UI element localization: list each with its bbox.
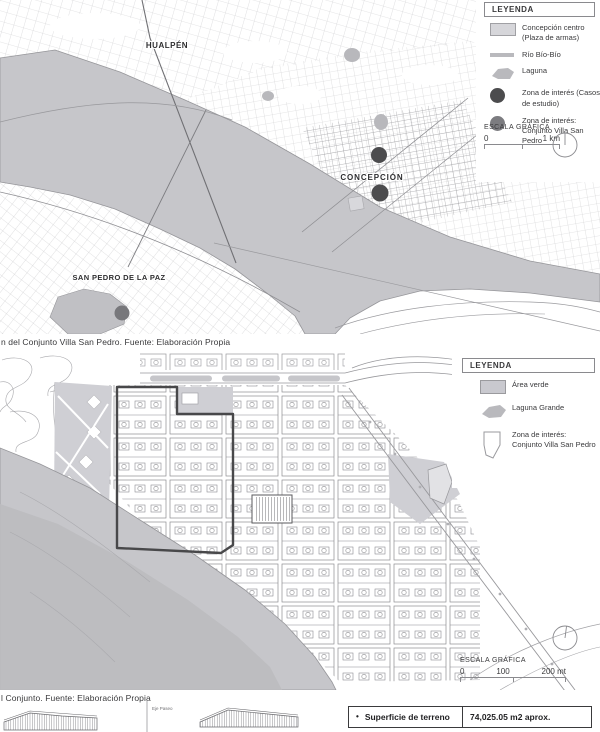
figure-page: HUALPÉN CONCEPCIÓN SAN PEDRO DE LA PAZ L… [0,0,600,732]
label-san-pedro: SAN PEDRO DE LA PAZ [72,273,165,282]
open-land-patch [278,86,322,104]
legend-item-laguna: Laguna [479,66,600,81]
surface-table: • Superficie de terreno 74,025.05 m2 apr… [348,706,592,728]
overview-scale: ESCALA GRÁFICA 0 1 km [484,124,560,150]
overview-scale-title: ESCALA GRÁFICA [484,124,560,131]
study-zone-dot-1 [371,147,387,163]
legend-item-laguna-grande: Laguna Grande [456,403,600,420]
overview-caption: n del Conjunto Villa San Pedro. Fuente: … [1,337,230,347]
school-building [252,495,292,523]
dark-circle-swatch-icon [490,88,505,103]
legend-item-label: Laguna [522,66,600,76]
legend-item-label: Zona de interés: Conjunto Villa San Pedr… [512,430,596,450]
detail-legend: LEYENDA Área verde Laguna Grande Zona de… [456,358,600,460]
legend-item-label: Río Bío-Bío [522,50,600,60]
scale-bar [484,144,560,150]
legend-item-zona-estudio: Zona de interés (Casos de estudio) [479,88,600,108]
square-swatch-icon [480,380,506,394]
study-zone-dot-2 [372,185,389,202]
surface-label: Superficie de terreno [365,712,450,722]
north-compass-icon [551,131,579,164]
legend-item-label: Área verde [512,380,596,390]
legend-item-label: Laguna Grande [512,403,596,413]
open-land-patch [223,41,287,63]
legend-item-rio: Río Bío-Bío [479,50,600,60]
legend-item-concepcion-centro: Concepción centro (Plaza de armas) [479,23,600,43]
bullet-icon: • [356,713,359,721]
overview-legend-title: LEYENDA [484,2,595,17]
detail-legend-title: LEYENDA [462,358,595,373]
river-swatch-icon [490,53,514,57]
surface-table-label-cell: • Superficie de terreno [349,707,463,727]
laguna-small [374,114,388,130]
label-hualpen: HUALPÉN [146,41,188,50]
label-concepcion: CONCEPCIÓN [340,173,403,182]
laguna-swatch-icon [490,66,516,81]
road-medians [150,376,340,382]
roof-elevation-right [200,708,298,727]
plaza-de-armas-marker [348,196,364,211]
scale-start: 0 [460,667,464,676]
detail-scale-title: ESCALA GRÁFICA [460,657,566,664]
detail-scale: ESCALA GRÁFICA 0 100 200 mt [460,657,566,683]
north-compass-icon [551,624,579,657]
legend-item-zona-villa: Zona de interés: Conjunto Villa San Pedr… [456,430,600,460]
scale-start: 0 [484,134,488,143]
community-building [182,393,198,404]
zone-shape-swatch-icon [480,430,504,460]
laguna-small [344,48,360,62]
open-land-patch [402,65,458,85]
scale-end: 200 mt [542,667,566,676]
legend-item-label: Concepción centro (Plaza de armas) [522,23,600,43]
scale-mid: 100 [496,667,509,676]
villa-san-pedro-dot [115,306,130,321]
legend-item-area-verde: Área verde [456,380,600,394]
square-swatch-icon [490,23,516,36]
roof-elevation-left [4,711,97,730]
axis-label: Eje Paseo [152,706,173,711]
scale-bar [460,677,566,683]
surface-value: 74,025.05 m2 aprox. [470,712,550,722]
north-block-strip [140,353,345,370]
detail-map: LEYENDA Área verde Laguna Grande Zona de… [0,352,600,690]
laguna-small [262,91,274,101]
laguna-swatch-icon [480,403,508,420]
surface-table-value-cell: 74,025.05 m2 aprox. [463,707,550,727]
legend-item-label: Zona de interés (Casos de estudio) [522,88,600,108]
overview-map: HUALPÉN CONCEPCIÓN SAN PEDRO DE LA PAZ L… [0,0,600,334]
open-land-patch [50,13,140,39]
